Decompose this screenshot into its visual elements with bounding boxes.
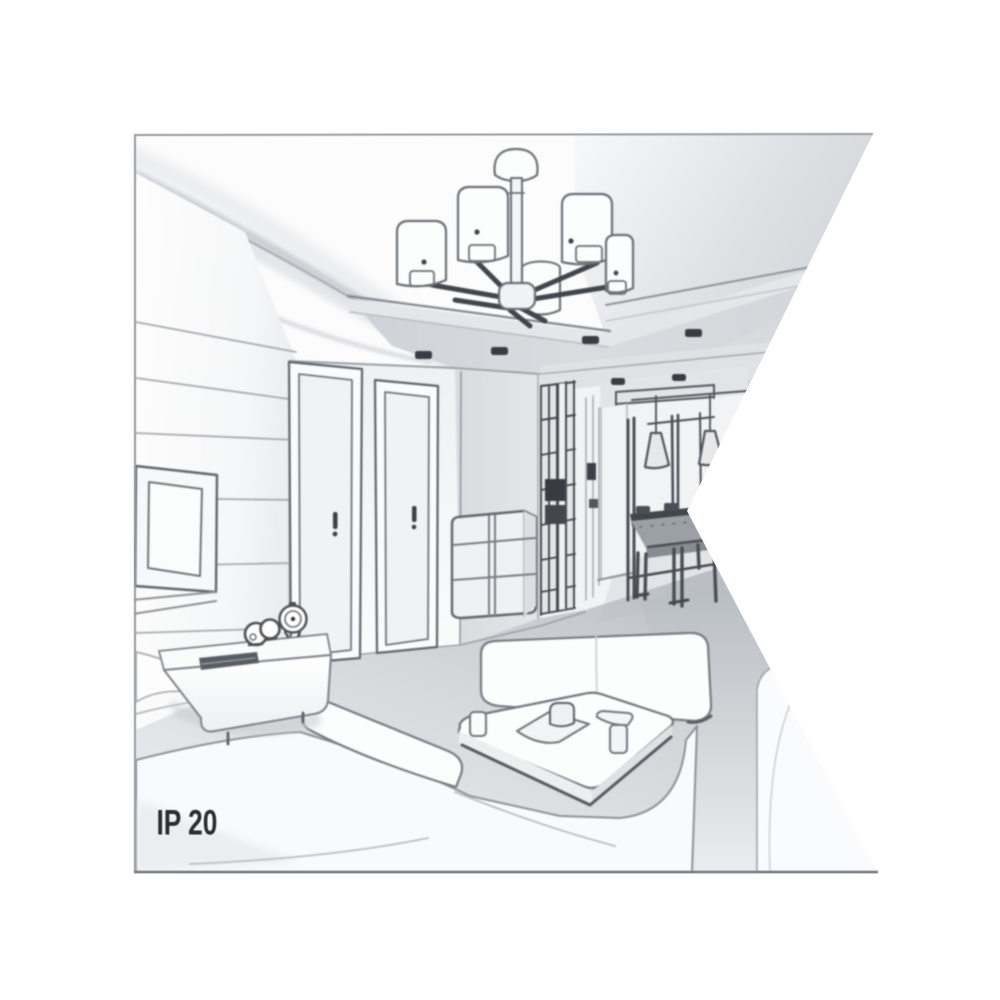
svg-text:IP 20: IP 20 <box>157 803 218 843</box>
